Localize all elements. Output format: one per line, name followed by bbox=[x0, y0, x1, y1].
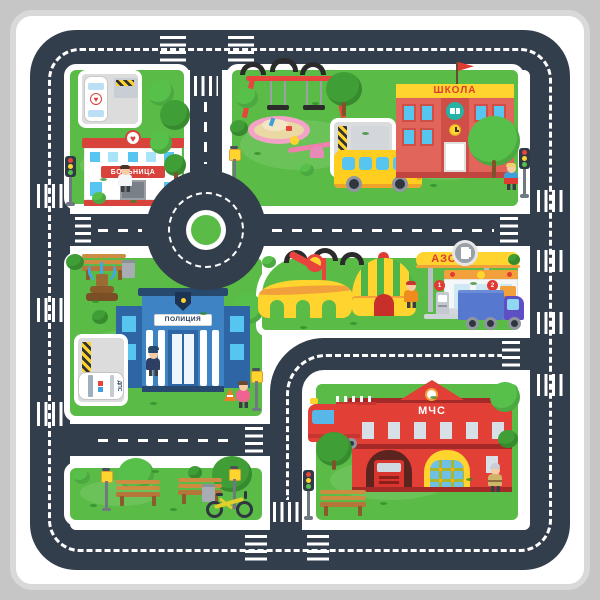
pb-part bbox=[404, 290, 418, 302]
tuft-part bbox=[130, 200, 137, 203]
tuft-part bbox=[92, 300, 99, 303]
ph-part bbox=[149, 350, 158, 359]
pole-part bbox=[523, 169, 526, 194]
tree bbox=[468, 116, 520, 166]
trunk-part bbox=[492, 160, 496, 178]
crosswalk bbox=[37, 298, 63, 322]
lamp-post bbox=[250, 368, 262, 412]
crosswalk bbox=[228, 36, 254, 64]
ph-part bbox=[121, 166, 130, 175]
traffic-light bbox=[64, 156, 77, 206]
decor bbox=[82, 342, 91, 372]
s1-part bbox=[320, 490, 366, 494]
ambulance: ♥ bbox=[84, 76, 108, 122]
fuel-pump bbox=[436, 292, 449, 316]
hazard-sign bbox=[114, 78, 138, 98]
decor bbox=[455, 130, 459, 132]
tuft-part bbox=[170, 508, 177, 511]
fountain bbox=[86, 262, 120, 302]
tuft-part bbox=[380, 502, 387, 505]
truck-wheel bbox=[508, 317, 521, 330]
win-part bbox=[342, 157, 355, 170]
police-car: ДПС bbox=[78, 372, 124, 400]
tuft-part bbox=[430, 396, 437, 399]
decor bbox=[396, 172, 514, 178]
tuft-part bbox=[100, 178, 107, 181]
decor bbox=[238, 381, 248, 385]
hospital-emblem: ♥ bbox=[125, 130, 141, 146]
decor bbox=[414, 422, 426, 439]
s2-part bbox=[116, 486, 160, 490]
decor bbox=[430, 460, 464, 490]
decor bbox=[270, 81, 272, 105]
decor bbox=[488, 480, 502, 482]
pl-part bbox=[407, 302, 416, 308]
bush bbox=[230, 120, 248, 136]
decor bbox=[306, 81, 308, 105]
decor bbox=[290, 136, 299, 145]
crosswalk bbox=[502, 341, 520, 367]
decor bbox=[507, 299, 519, 310]
girl-pedestrian bbox=[504, 164, 518, 190]
win-part bbox=[230, 344, 244, 360]
li-part bbox=[306, 484, 311, 489]
decor bbox=[438, 305, 447, 307]
li-part bbox=[68, 170, 73, 175]
base-part bbox=[102, 508, 111, 511]
bush bbox=[300, 164, 314, 176]
ambulance-rear-window bbox=[88, 110, 104, 117]
pb-part bbox=[236, 390, 250, 402]
fireman bbox=[488, 466, 502, 492]
pl-part bbox=[121, 186, 130, 192]
win-part bbox=[90, 152, 100, 162]
decor bbox=[148, 346, 159, 350]
pole-part bbox=[105, 481, 108, 508]
police-lightbar bbox=[98, 381, 103, 386]
crosswalk bbox=[537, 312, 563, 334]
base-part bbox=[520, 194, 529, 198]
crosswalk bbox=[307, 535, 329, 563]
decor bbox=[322, 300, 336, 318]
decor bbox=[296, 300, 310, 318]
decor bbox=[310, 398, 318, 404]
traffic-light bbox=[518, 148, 531, 198]
bush bbox=[262, 256, 276, 268]
doctor bbox=[118, 166, 132, 192]
pl-part bbox=[239, 402, 248, 408]
bicycle bbox=[206, 488, 258, 520]
decor bbox=[379, 476, 399, 479]
crosswalk bbox=[537, 250, 563, 272]
tree bbox=[160, 100, 190, 130]
gas-attendant bbox=[404, 282, 418, 308]
crosswalk bbox=[160, 36, 186, 64]
bush bbox=[92, 192, 106, 204]
decor bbox=[303, 105, 325, 110]
centerline bbox=[204, 102, 207, 164]
tuft-part bbox=[200, 312, 207, 315]
ph-part bbox=[507, 164, 516, 173]
pl-part bbox=[507, 184, 516, 190]
base-part bbox=[304, 516, 313, 520]
li-part bbox=[522, 162, 527, 167]
decor bbox=[440, 422, 452, 439]
decor bbox=[428, 268, 433, 312]
centerline bbox=[272, 229, 494, 232]
police-door bbox=[168, 330, 198, 386]
decor bbox=[450, 272, 455, 277]
decor bbox=[88, 375, 93, 397]
decor bbox=[458, 290, 504, 320]
decor bbox=[491, 463, 500, 467]
decor bbox=[182, 334, 184, 384]
tuft-part bbox=[466, 478, 473, 481]
decor bbox=[506, 163, 516, 167]
tuft-part bbox=[150, 402, 157, 405]
pb-part bbox=[146, 358, 160, 370]
school-door bbox=[444, 142, 466, 172]
tree bbox=[326, 72, 362, 106]
crosswalk bbox=[37, 402, 63, 426]
hospital-sign: БОЛЬНИЦА bbox=[101, 166, 165, 178]
bush bbox=[498, 430, 518, 448]
bush bbox=[66, 254, 84, 270]
pole-part bbox=[307, 491, 310, 516]
crosswalk bbox=[273, 502, 299, 522]
bush bbox=[74, 470, 90, 484]
bicycle-seat bbox=[216, 493, 223, 496]
bus-wheel bbox=[346, 176, 362, 192]
play-wall bbox=[258, 280, 352, 318]
li-part bbox=[306, 478, 311, 483]
crosswalk bbox=[37, 184, 63, 208]
win-part bbox=[420, 128, 434, 146]
win-part bbox=[376, 157, 389, 170]
crosswalk bbox=[245, 427, 263, 453]
s2-part bbox=[320, 496, 366, 500]
school-clock bbox=[449, 124, 461, 136]
decor bbox=[200, 330, 207, 386]
li-part bbox=[68, 164, 73, 169]
crosswalk bbox=[500, 217, 518, 243]
decor bbox=[267, 105, 289, 110]
win-part bbox=[402, 104, 416, 122]
traffic-light bbox=[302, 470, 315, 520]
bicycle-wheel bbox=[236, 501, 253, 518]
trunk-part bbox=[332, 460, 336, 470]
pb-part bbox=[488, 474, 502, 486]
trash-bin bbox=[122, 260, 135, 278]
s1-part bbox=[82, 254, 126, 258]
decor bbox=[312, 410, 334, 424]
play-mat: ♥ ♥ БОЛЬНИЦА bbox=[0, 0, 600, 600]
centerline bbox=[98, 439, 238, 442]
traffic-cone bbox=[224, 388, 236, 402]
lg-part bbox=[358, 506, 362, 516]
ambulance-windshield bbox=[88, 83, 104, 90]
decor bbox=[270, 300, 284, 318]
park-bench bbox=[116, 480, 160, 506]
pump-number-1: 1 bbox=[434, 280, 445, 291]
decor bbox=[388, 422, 400, 439]
pl-part bbox=[491, 486, 500, 492]
bicycle-handlebar bbox=[244, 491, 247, 499]
decor bbox=[284, 81, 286, 105]
delivery-truck bbox=[458, 290, 526, 330]
win-part bbox=[402, 128, 416, 146]
tuft-part bbox=[430, 184, 437, 187]
win-part bbox=[420, 104, 434, 122]
tuft-part bbox=[152, 470, 159, 473]
fire-station-sign: МЧС bbox=[400, 405, 464, 418]
truck-wheel bbox=[484, 317, 497, 330]
tuft-part bbox=[350, 322, 357, 325]
tent-door bbox=[374, 294, 394, 316]
tuft-part bbox=[254, 152, 261, 155]
decor bbox=[438, 295, 447, 302]
li-part bbox=[306, 472, 311, 477]
decor bbox=[455, 108, 456, 114]
decor bbox=[406, 281, 416, 285]
policeman bbox=[146, 350, 160, 376]
pb-part bbox=[118, 174, 132, 186]
fuel-pump-icon bbox=[461, 247, 469, 259]
school-emblem bbox=[446, 102, 464, 120]
school-sign: ШКОЛА bbox=[396, 84, 514, 98]
crosswalk bbox=[75, 217, 91, 243]
police-sign: ПОЛИЦИЯ bbox=[154, 314, 212, 326]
girl-pink-dress bbox=[236, 382, 250, 408]
win-part bbox=[128, 152, 138, 162]
truck-wheel bbox=[466, 317, 479, 330]
decor bbox=[469, 249, 471, 257]
decor bbox=[377, 463, 401, 472]
tuft-part bbox=[362, 132, 369, 135]
bush bbox=[92, 310, 108, 324]
decor bbox=[227, 395, 233, 397]
decor bbox=[212, 330, 219, 386]
crosswalk bbox=[194, 76, 218, 96]
garage-bay-door bbox=[424, 450, 470, 492]
bush bbox=[508, 254, 520, 265]
win-part bbox=[122, 316, 136, 332]
school-flag bbox=[456, 62, 458, 86]
pole-part bbox=[255, 381, 258, 408]
ph-part bbox=[239, 382, 248, 391]
bus-wheel bbox=[392, 176, 408, 192]
school-flag-cloth bbox=[458, 62, 474, 74]
medical-cross-icon: ♥ bbox=[90, 93, 102, 105]
roundabout-island bbox=[191, 215, 221, 245]
base-part bbox=[66, 202, 75, 206]
gas-logo bbox=[452, 240, 478, 266]
tuft-part bbox=[470, 282, 477, 285]
lg-part bbox=[152, 496, 156, 506]
win-part bbox=[359, 157, 372, 170]
decor bbox=[146, 152, 156, 162]
decor bbox=[108, 152, 118, 162]
tree bbox=[490, 382, 520, 412]
tuft-part bbox=[312, 102, 319, 105]
tuft-part bbox=[300, 326, 307, 329]
decor bbox=[320, 81, 322, 105]
win-part bbox=[230, 316, 244, 332]
s1-part bbox=[116, 480, 160, 484]
decor bbox=[507, 272, 512, 277]
crosswalk bbox=[537, 374, 563, 396]
park-bench bbox=[320, 490, 366, 516]
fire-emblem bbox=[425, 388, 438, 401]
police-car-label: ДПС bbox=[112, 380, 126, 392]
lg-part bbox=[182, 494, 186, 504]
decor bbox=[86, 293, 118, 301]
bush bbox=[236, 88, 258, 108]
decor bbox=[466, 422, 478, 439]
decor bbox=[477, 271, 485, 279]
pb-part bbox=[504, 172, 518, 184]
decor bbox=[96, 274, 108, 286]
garage-bay-open bbox=[366, 450, 412, 492]
decor bbox=[310, 146, 324, 158]
decor bbox=[181, 298, 186, 303]
tree bbox=[150, 132, 172, 154]
trunk-part bbox=[342, 102, 346, 116]
decor bbox=[90, 286, 114, 293]
decor bbox=[258, 283, 352, 296]
pl-part bbox=[149, 370, 158, 376]
tuft-part bbox=[90, 504, 97, 507]
crosswalk bbox=[537, 190, 563, 212]
crosswalk bbox=[245, 535, 267, 563]
centerline bbox=[98, 229, 142, 232]
lg-part bbox=[324, 506, 328, 516]
toy-bucket bbox=[286, 126, 292, 131]
lg-part bbox=[120, 496, 124, 506]
decor bbox=[116, 80, 134, 86]
decor bbox=[379, 481, 399, 484]
base-part bbox=[252, 408, 261, 411]
ph-part bbox=[407, 282, 416, 291]
li-part bbox=[522, 150, 527, 155]
police-building: ПОЛИЦИЯ bbox=[116, 288, 250, 394]
decor bbox=[120, 165, 130, 169]
decor bbox=[142, 386, 224, 392]
decor bbox=[262, 119, 288, 131]
pole-part bbox=[69, 177, 72, 202]
li-part bbox=[522, 156, 527, 161]
decor bbox=[98, 387, 103, 392]
li-part bbox=[68, 158, 73, 163]
s1-part bbox=[178, 478, 222, 482]
lamp-post bbox=[100, 468, 112, 512]
